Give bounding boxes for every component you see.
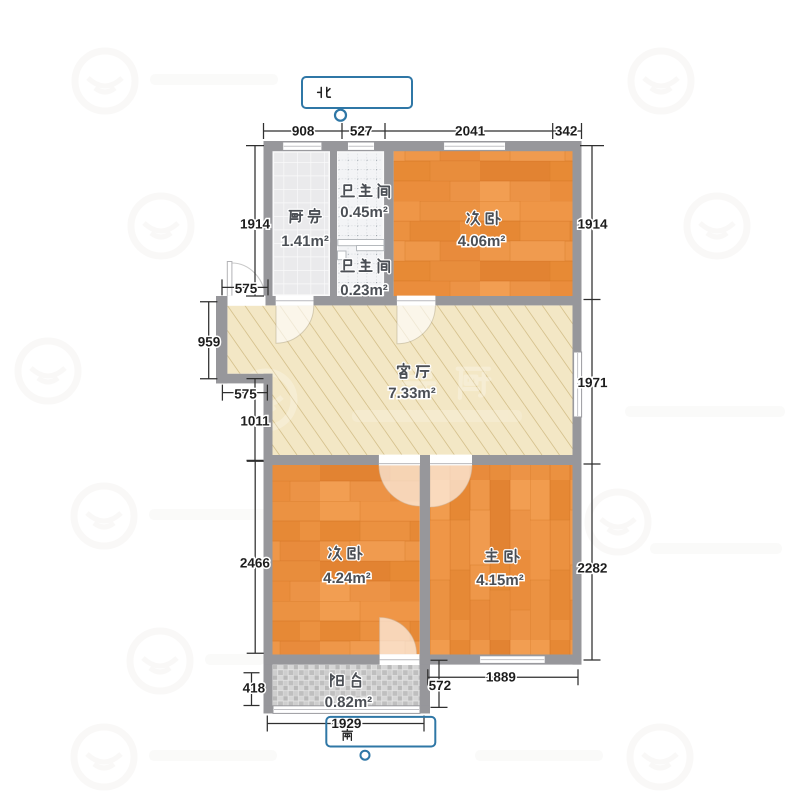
svg-text:4.06m²: 4.06m²: [458, 233, 506, 250]
svg-text:2282: 2282: [577, 561, 607, 576]
svg-text:575: 575: [234, 386, 257, 401]
svg-text:342: 342: [555, 124, 578, 139]
svg-text:575: 575: [235, 281, 258, 296]
svg-text:1889: 1889: [486, 670, 516, 685]
svg-text:1914: 1914: [240, 216, 271, 231]
svg-text:2041: 2041: [455, 124, 486, 139]
svg-text:0.23m²: 0.23m²: [340, 282, 388, 299]
svg-text:1929: 1929: [331, 716, 361, 731]
svg-text:4.24m²: 4.24m²: [323, 570, 371, 587]
svg-text:959: 959: [198, 334, 221, 349]
svg-text:527: 527: [350, 123, 373, 138]
svg-text:908: 908: [292, 123, 315, 138]
svg-text:7.33m²: 7.33m²: [388, 385, 436, 402]
svg-text:0.45m²: 0.45m²: [340, 204, 388, 221]
svg-text:1011: 1011: [240, 413, 270, 428]
svg-text:572: 572: [429, 678, 452, 693]
svg-text:1.41m²: 1.41m²: [281, 233, 329, 250]
svg-text:4.15m²: 4.15m²: [476, 572, 524, 589]
svg-text:0.82m²: 0.82m²: [325, 694, 373, 711]
svg-text:418: 418: [243, 680, 266, 695]
svg-text:2466: 2466: [240, 555, 271, 570]
svg-text:1971: 1971: [577, 375, 608, 390]
svg-text:1914: 1914: [578, 217, 609, 232]
